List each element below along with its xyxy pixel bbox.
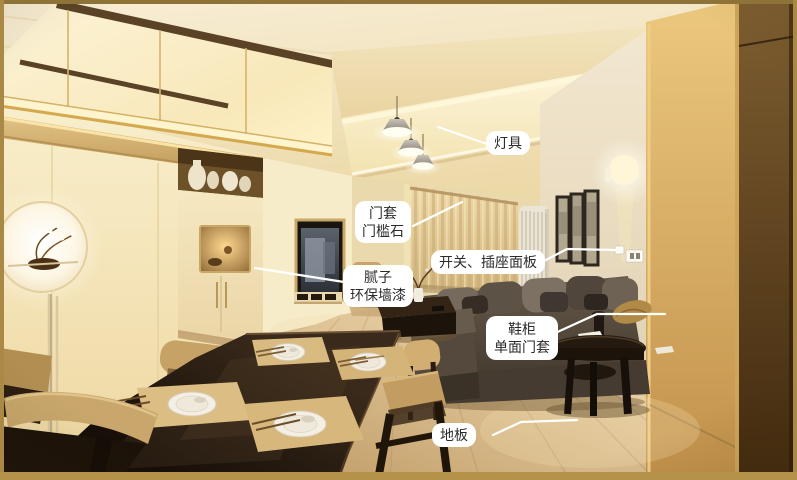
annotation-lamp-text: 灯具 — [494, 133, 522, 153]
annotation-wall-putty-line2: 环保墙漆 — [350, 286, 406, 304]
annotation-shoe-cabinet: 鞋柜 单面门套 — [486, 316, 558, 360]
annotation-door-casing: 门套 门槛石 — [355, 201, 411, 243]
annotation-switch-panel-text: 开关、插座面板 — [439, 252, 537, 272]
annotation-door-casing-line1: 门套 — [362, 204, 404, 222]
annotation-wall-putty: 腻子 环保墙漆 — [343, 265, 413, 307]
annotation-door-casing-line2: 门槛石 — [362, 222, 404, 240]
annotation-lamp: 灯具 — [486, 131, 530, 155]
annotation-switch-panel: 开关、插座面板 — [431, 250, 545, 274]
annotation-shoe-cabinet-line1: 鞋柜 — [494, 320, 550, 338]
annotation-floor: 地板 — [432, 423, 476, 447]
annotation-floor-text: 地板 — [440, 425, 468, 445]
annotation-shoe-cabinet-line2: 单面门套 — [494, 338, 550, 356]
annotated-room-photo: 灯具 门套 门槛石 开关、插座面板 腻子 环保墙漆 鞋柜 单面门套 地板 — [0, 0, 797, 480]
annotation-wall-putty-line1: 腻子 — [350, 268, 406, 286]
